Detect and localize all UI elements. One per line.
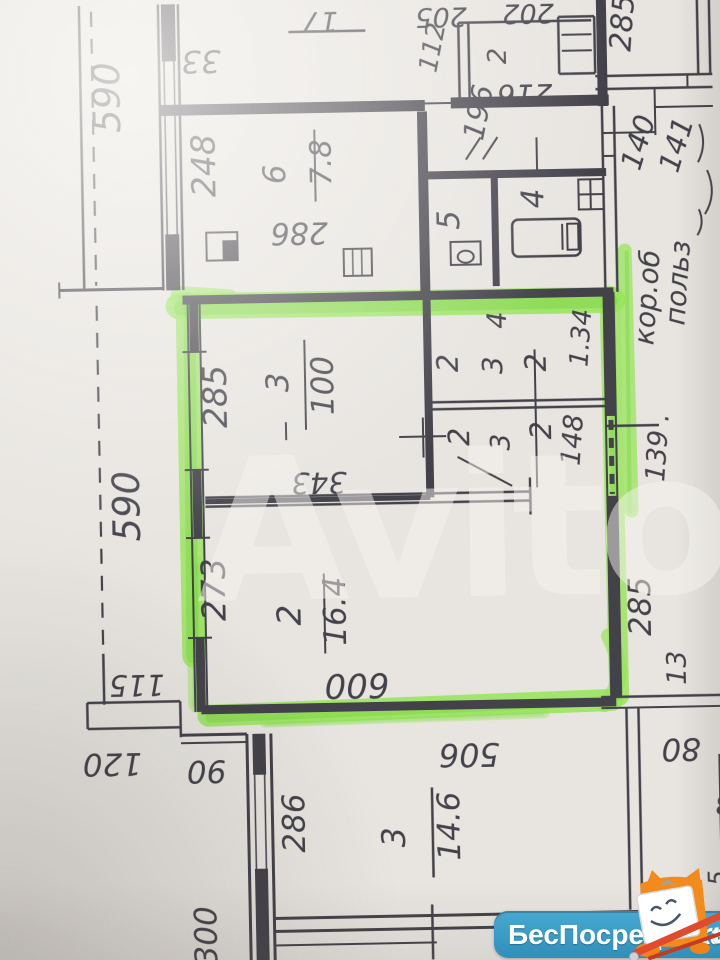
wall-line — [181, 734, 247, 735]
wall-line — [429, 406, 611, 409]
wall-line — [458, 456, 513, 487]
wall-line — [558, 17, 559, 74]
plan-label: 17 — [302, 5, 338, 39]
fixture-fill — [222, 240, 236, 259]
branding-site-name: БесПосредника — [494, 919, 720, 951]
wall-line — [594, 16, 595, 73]
wall-line — [426, 172, 606, 175]
wall-line — [458, 23, 459, 99]
wall-line — [79, 6, 84, 290]
wall-line — [265, 775, 267, 869]
plan-label: 148 — [556, 413, 590, 467]
fixture-ellipse — [458, 251, 474, 263]
plan-label: 205 — [415, 1, 467, 33]
wall-line — [559, 73, 595, 74]
branding-tld: .ru — [690, 916, 720, 954]
plan-label: польз — [658, 239, 697, 326]
wall-line — [638, 707, 642, 909]
plan-label: 100 — [305, 356, 342, 416]
wall-line — [561, 34, 591, 35]
plan-label: 139 . — [640, 412, 676, 483]
wall-line — [168, 4, 169, 61]
plan-label: 248 — [183, 134, 223, 198]
plan-label: 1.34 — [564, 308, 598, 368]
plan-label: 285 — [195, 365, 235, 429]
plan-label: 5 — [431, 210, 467, 230]
fixture-rect — [450, 241, 480, 265]
plan-label: 600 — [324, 664, 390, 705]
wall-line — [159, 105, 425, 110]
plan-label: 115 — [109, 668, 165, 703]
plan-label: 506 — [438, 735, 500, 774]
handwriting-scribble — [697, 209, 702, 235]
plan-label: 2 — [431, 354, 465, 373]
plan-label: 2 — [483, 47, 513, 64]
plan-label: 285 — [603, 0, 642, 53]
wall-line — [596, 87, 713, 89]
plan-label: 2 — [269, 604, 308, 626]
wall-line — [429, 399, 611, 402]
wall-line — [612, 496, 616, 698]
plan-label: 5 — [703, 870, 720, 886]
dashed-line — [97, 306, 104, 652]
wall-line — [530, 478, 531, 515]
wall-line — [88, 727, 181, 729]
plan-label: 285 — [622, 576, 659, 636]
wall-line — [197, 470, 198, 538]
plan-label: 90 — [186, 752, 226, 789]
plan-label: 33 — [181, 42, 221, 79]
wall-line — [426, 295, 430, 497]
wall-line — [697, 0, 699, 74]
plan-label: 196 — [456, 82, 500, 143]
floorplan-photo: 59024867.8112219654285140141кор.обпольз1… — [0, 0, 720, 960]
wall-line — [626, 708, 630, 910]
plan-label: 216 — [497, 77, 553, 112]
wall-line — [709, 0, 711, 74]
plan-label: 2 — [442, 427, 476, 446]
plan-label: 4 — [482, 311, 513, 329]
wall-line — [422, 112, 426, 296]
wall-line — [536, 137, 537, 169]
fixture-rect — [567, 224, 578, 250]
plan-label: 14.6 — [431, 791, 468, 861]
wall-line — [494, 178, 496, 286]
plan-label: 343 — [291, 465, 347, 500]
wall-line — [423, 418, 424, 458]
fixture-rect — [344, 249, 373, 277]
wall-line — [656, 106, 713, 107]
wall-line — [200, 638, 201, 712]
fixture-line — [362, 249, 363, 276]
plan-label: 273 — [193, 558, 233, 622]
plan-label: 2 — [524, 421, 558, 440]
wall-line — [595, 74, 712, 76]
plan-label: 3 — [260, 372, 296, 392]
plan-label: 286 — [276, 793, 313, 853]
wall-line — [103, 654, 104, 705]
floorplan-drawing: 59024867.8112219654285140141кор.обпольз1… — [0, 0, 720, 960]
wall-line — [181, 742, 247, 743]
plan-label: 120 — [82, 745, 142, 782]
plan-label: 7.8 — [303, 139, 338, 186]
wall-line — [174, 61, 177, 234]
plan-label: 16.4 — [317, 576, 354, 646]
plan-label: 3 — [714, 788, 720, 819]
wall-line — [608, 292, 610, 416]
wall-line — [194, 300, 195, 352]
wall-line — [271, 734, 275, 960]
fixture-line — [590, 179, 591, 209]
plan-label: 590 — [105, 471, 149, 542]
plan-label: 286 — [270, 214, 328, 250]
plan-label: 3 — [476, 356, 509, 374]
wall-line — [432, 904, 433, 959]
branding-badge: БесПосредника — [494, 911, 720, 958]
plan-label: 3 — [485, 433, 516, 451]
wall-line — [562, 50, 592, 51]
wall-line — [172, 234, 173, 290]
plan-label: 4 — [515, 188, 551, 208]
wall-line — [255, 775, 257, 869]
plan-label: 300 — [188, 906, 225, 960]
dashed-line — [91, 12, 96, 286]
plan-label: 6 — [257, 164, 293, 184]
wall-line — [247, 734, 251, 960]
wall-line — [558, 16, 594, 17]
wall-line — [164, 61, 167, 234]
fixture-line — [353, 249, 354, 276]
handwriting-scribble — [704, 170, 712, 214]
plan-label: 3 — [375, 827, 413, 848]
plan-label: 13 — [661, 650, 693, 685]
plan-label: 2 — [519, 353, 553, 372]
plan-label: 590 — [85, 62, 129, 133]
plan-label: 202 — [502, 0, 554, 29]
wall-line — [275, 942, 437, 945]
wall-line — [59, 289, 162, 291]
wall-line — [259, 734, 260, 775]
plan-group: 59024867.8112219654285140141кор.обпольз1… — [54, 0, 720, 960]
wall-line — [261, 869, 263, 960]
plan-label: 80 — [661, 730, 701, 767]
